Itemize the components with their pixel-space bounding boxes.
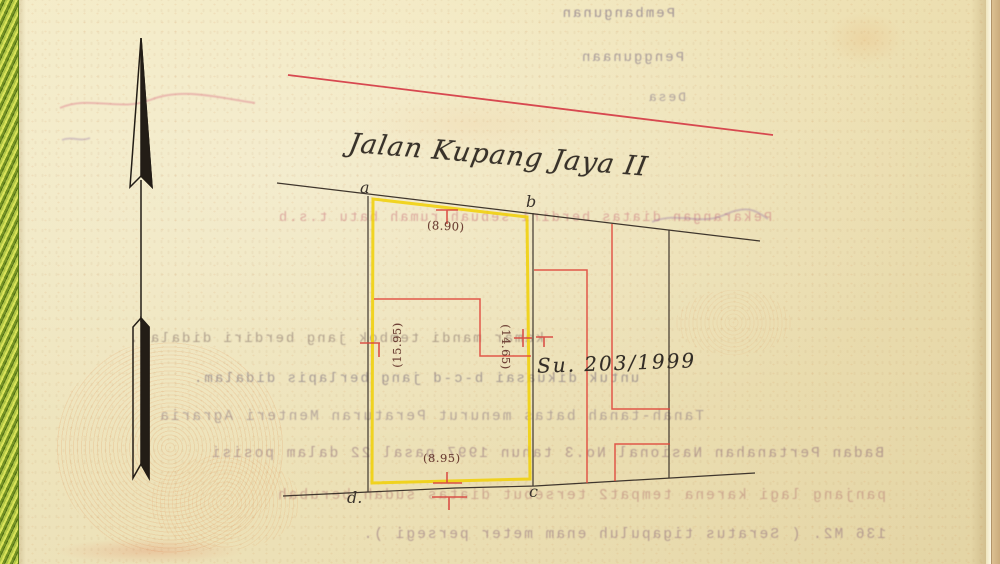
road-line-red (288, 75, 773, 135)
measurement-bottom: (8.95) (423, 451, 461, 465)
boundary-lines-black (277, 183, 760, 496)
measurement-ticks-red (360, 210, 553, 510)
measurement-top: (8.90) (427, 218, 465, 234)
corner-label-c: c (529, 482, 538, 501)
corner-label-d: d. (347, 488, 362, 507)
survey-sketch (0, 0, 1000, 564)
green-binding-edge (0, 0, 19, 564)
scanned-survey-document: Pembangunan Penggunaan Desa Pekarangan d… (0, 0, 1000, 564)
corner-label-b: b (526, 192, 536, 211)
underlying-page-edge (991, 0, 1000, 564)
corner-label-a: a (360, 178, 370, 197)
measurement-middle: (14.65) (499, 324, 513, 369)
measurement-left: (15.95) (390, 322, 404, 367)
